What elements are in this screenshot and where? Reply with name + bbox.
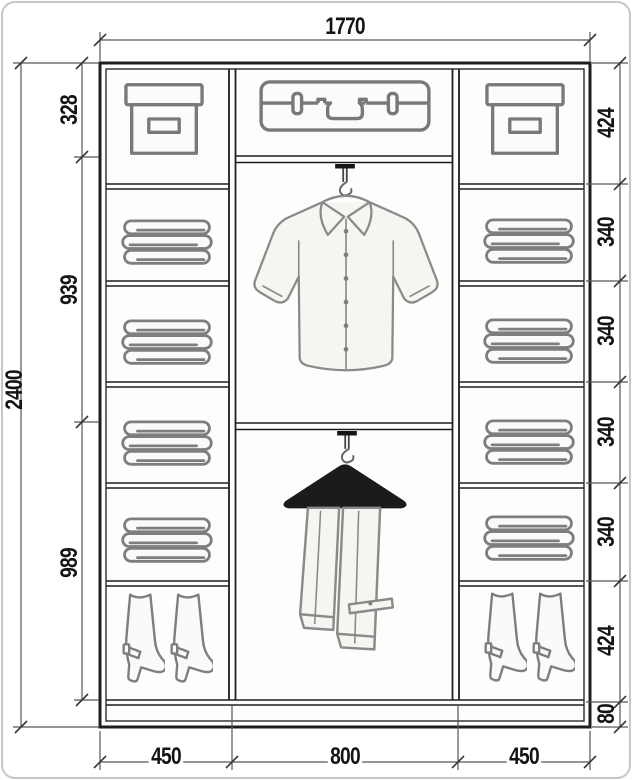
folded-clothes-icon [123,519,212,561]
dim-right-section-5: 340 [595,517,619,547]
dim-right-section-7: 80 [595,704,619,724]
dim-right-section-6: 424 [595,626,619,656]
folded-clothes-icon [123,422,212,464]
dim-bottom-section-2: 800 [328,745,362,769]
wardrobe-dimension-drawing: 1770 2400 328 939 989 424 340 340 340 34… [0,0,632,780]
wardrobe-line-art [0,0,632,780]
dim-left-section-2: 939 [58,275,82,305]
dim-left-section-1: 328 [58,95,82,125]
dim-right-section-3: 340 [595,316,619,346]
dim-total-height: 2400 [3,370,27,410]
dim-bottom-section-1: 450 [149,745,183,769]
dim-total-width: 1770 [323,15,367,39]
folded-clothes-icon [485,517,574,559]
dim-right-section-1: 424 [595,108,619,138]
folded-clothes-icon [485,320,574,362]
storage-box-icon [126,85,202,153]
suitcase-icon [261,82,429,130]
dim-bottom-section-3: 450 [507,745,541,769]
dim-right-section-2: 340 [595,217,619,247]
folded-clothes-icon [485,421,574,463]
dim-left-section-3: 989 [58,548,82,578]
storage-box-icon [487,85,563,153]
dim-line-left-sections [74,63,99,700]
dim-right-section-4: 340 [595,417,619,447]
folded-clothes-icon [123,321,212,363]
folded-clothes-icon [123,221,212,263]
folded-clothes-icon [485,220,574,262]
